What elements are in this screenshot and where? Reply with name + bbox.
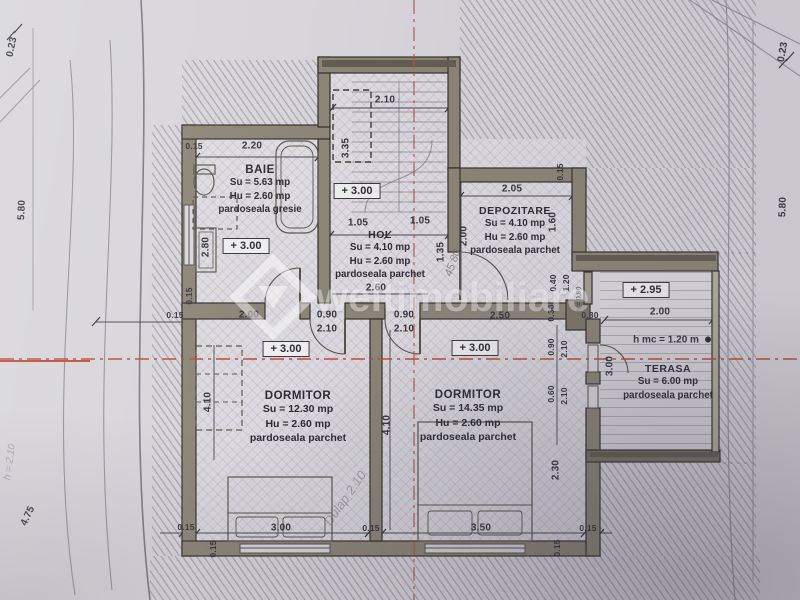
dim-bot-015e: 0.15 bbox=[552, 539, 562, 556]
dim-right-210b: 2.10 bbox=[559, 387, 569, 404]
room-terasa-su: Su = 6.00 mp bbox=[623, 375, 713, 389]
room-dormitor1-floor: pardoseala parchet bbox=[250, 431, 346, 446]
level-marker-dormitor2: + 3.00 bbox=[452, 340, 499, 356]
dim-bot-015d: 0.15 bbox=[208, 540, 218, 557]
dim-bot-015a: 0.15 bbox=[177, 522, 194, 532]
room-depozitare-hu: Hu = 2.60 mp bbox=[470, 231, 560, 245]
watermark-text: weltimobiliare bbox=[316, 274, 589, 321]
room-dormitor1-name: DORMITOR bbox=[250, 390, 346, 402]
room-dormitor1: DORMITOR Su = 12.30 mp Hu = 2.60 mp pard… bbox=[250, 390, 346, 446]
dim-baie-015-top: 0.15 bbox=[185, 141, 202, 151]
room-depozitare-floor: pardoseala parchet bbox=[470, 244, 560, 258]
room-dormitor1-su: Su = 12.30 mp bbox=[250, 402, 346, 417]
watermark: weltimobiliare bbox=[242, 266, 589, 328]
room-dormitor2-floor: pardoseala parchet bbox=[420, 430, 516, 445]
room-terasa: TERASA Su = 6.00 mp pardoseala parchet bbox=[623, 363, 713, 402]
dim-baie-015-bottom: 0.15 bbox=[184, 287, 194, 304]
level-marker-stair: + 3.00 bbox=[334, 183, 381, 199]
dim-bot-015b: 0.15 bbox=[362, 523, 379, 533]
dim-mid-200: 2.00 bbox=[459, 226, 470, 246]
room-dormitor2-su: Su = 14.35 mp bbox=[420, 401, 516, 416]
dim-right-230: 2.30 bbox=[551, 460, 562, 480]
terrace-ceiling-height: h mc = 1.20 m bbox=[633, 335, 711, 346]
level-marker-dormitor1: + 3.00 bbox=[263, 341, 310, 357]
room-terasa-floor: pardoseala parchet bbox=[623, 389, 713, 403]
dim-baie-height: 2.80 bbox=[201, 237, 212, 257]
room-baie-name: BAIE bbox=[218, 164, 301, 176]
dim-hol-105a: 1.05 bbox=[348, 218, 368, 229]
dim-hol-105b: 1.05 bbox=[410, 216, 430, 227]
dim-band-015: 0.15 bbox=[166, 310, 183, 320]
dim-hol-135: 1.35 bbox=[436, 242, 447, 262]
room-hol-su: Su = 4.10 mp bbox=[335, 241, 425, 255]
room-depozitare: DEPOZITARE Su = 4.10 mp Hu = 2.60 mp par… bbox=[470, 205, 560, 258]
dim-right-060: 0.60 bbox=[546, 385, 556, 402]
dim-margin-right-580: 5.80 bbox=[777, 197, 789, 218]
room-dormitor2-name: DORMITOR bbox=[420, 389, 516, 401]
level-marker-terasa: + 2.95 bbox=[623, 282, 670, 298]
dim-bot-300: 3.00 bbox=[271, 523, 291, 534]
room-hol-name: HOL bbox=[335, 229, 425, 241]
dim-stair-height: 3.35 bbox=[341, 138, 352, 158]
dim-right-090: 0.90 bbox=[546, 338, 556, 355]
room-depozitare-name: DEPOZITARE bbox=[470, 205, 560, 217]
dim-baie-width: 2.20 bbox=[242, 141, 262, 152]
chimney-dashed bbox=[333, 90, 371, 162]
floor-plan-photo: 0.23 5.80 4.75 0.23 5.80 2.10 3.35 0.15 … bbox=[0, 0, 800, 600]
dim-margin-left-580: 5.80 bbox=[16, 200, 28, 221]
room-baie: BAIE Su = 5.63 mp Hu = 2.60 mp pardoseal… bbox=[218, 164, 301, 217]
dim-d1-410-right: 4.10 bbox=[382, 415, 393, 435]
room-dormitor2: DORMITOR Su = 14.35 mp Hu = 2.60 mp pard… bbox=[420, 389, 516, 445]
level-marker-baie: + 3.00 bbox=[223, 238, 270, 254]
watermark-logo-icon bbox=[229, 253, 317, 341]
toilet bbox=[194, 169, 214, 195]
dim-terrace-200: 2.00 bbox=[650, 307, 670, 318]
dim-terrace-300: 3.00 bbox=[605, 356, 616, 376]
room-baie-floor: pardoseala gresie bbox=[218, 203, 301, 217]
room-depozitare-su: Su = 4.10 mp bbox=[470, 217, 560, 231]
room-baie-su: Su = 5.63 mp bbox=[218, 176, 301, 190]
dim-dep-width: 2.05 bbox=[502, 184, 522, 195]
dim-bot-015c: 0.15 bbox=[579, 523, 596, 533]
room-terasa-name: TERASA bbox=[623, 363, 713, 375]
room-dormitor2-hu: Hu = 2.60 mp bbox=[420, 416, 516, 431]
dim-stair-width: 2.10 bbox=[375, 95, 395, 106]
room-dormitor1-hu: Hu = 2.60 mp bbox=[250, 417, 346, 432]
dim-d1-410-left: 4.10 bbox=[203, 392, 214, 412]
dim-right-210a: 2.10 bbox=[559, 340, 569, 357]
dim-dep-015: 0.15 bbox=[555, 163, 565, 180]
room-baie-hu: Hu = 2.60 mp bbox=[218, 190, 301, 204]
dim-bot-350: 3.50 bbox=[471, 523, 491, 534]
